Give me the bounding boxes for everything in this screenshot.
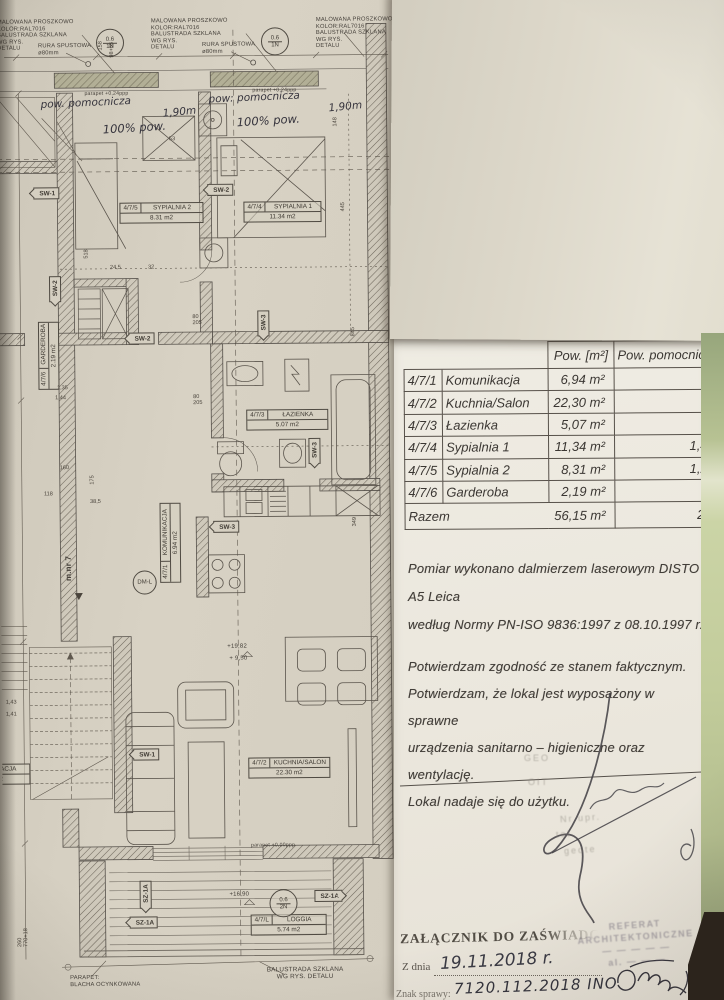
dim-text: 260 770+18 (17, 928, 29, 947)
section-marker: SW-3 (308, 438, 320, 464)
case-number-label: Znak sprawy: (396, 989, 451, 1000)
dim-text: 518 (83, 249, 89, 258)
blank-top-sheet (390, 0, 724, 341)
room-area: 22.30 m2 (249, 768, 329, 778)
room-id: 4/7/3 (247, 410, 268, 419)
room-label-sypialnia-1: 4/7/4SYPIALNIA 1 11.34 m2 (243, 201, 321, 223)
dim-text: 148 (332, 117, 338, 126)
dim-text: 118 (44, 491, 53, 497)
dim-text: 98+65 (109, 42, 115, 58)
table-cell-id: 4/7/1 (404, 370, 442, 393)
room-area: 11.34 m2 (244, 212, 320, 222)
dim-text: 24,5 (110, 265, 121, 271)
dim-text: 80 205 (193, 394, 202, 406)
table-cell-name: Łazienka (442, 414, 548, 437)
table-total-aux: 2, (614, 502, 708, 529)
room-id: 4/7/5 (120, 204, 141, 213)
room-name: SYPIALNIA 2 (142, 203, 203, 213)
section-marker: SZ-1A (140, 880, 152, 909)
table-cell-aux (614, 390, 708, 413)
room-area: 5.07 m2 (247, 420, 327, 430)
table-cell-name: Sypialnia 2 (442, 459, 548, 482)
photo-of-document: MALOWANA PROSZKOWO KOLOR:RAL7016 BALUSTR… (0, 0, 724, 1000)
dm-l-marker: DM-L (133, 570, 157, 594)
table-cell-id: 4/7/5 (404, 459, 442, 482)
parapet-level-note: parapet +0,00ppp (251, 842, 295, 849)
table-total-label: Razem (404, 503, 548, 530)
room-id: 4/7/6 (39, 368, 48, 389)
room-label-loggia: 4/7/LLOGGIA 5.74 m2 (251, 914, 327, 936)
room-id: 4/7/4 (244, 202, 265, 211)
table-cell-id: 4/7/3 (404, 415, 442, 438)
room-label-lazienka: 4/7/3ŁAZIENKA 5.07 m2 (246, 409, 328, 431)
room-area: 6.94 m2 (171, 504, 181, 582)
room-name: KOMUNIKACJA (161, 504, 170, 561)
room-label-komunikacja: 4/7/1KOMUNIKACJA 6.94 m2 (160, 503, 182, 583)
faint-stamp-fragment: OIT (528, 777, 549, 787)
marker-label: DM-L (137, 579, 152, 585)
table-header-area: Pow. [m²] (547, 341, 613, 369)
handwritten-case-number: 7120.112.2018 INO (454, 974, 618, 998)
faint-stamp-fragment: Nr upr. (560, 812, 602, 825)
table-cell-name: Kuchnia/Salon (442, 391, 548, 414)
dim-text: 1,43 (6, 700, 17, 706)
floor-plan-drawing: MALOWANA PROSZKOWO KOLOR:RAL7016 BALUSTR… (0, 0, 404, 1000)
table-cell-id: 4/7/4 (404, 437, 442, 460)
confirmation-text: Potwierdzam zgodność ze stanem faktyczny… (408, 653, 708, 815)
dim-text: 53 (169, 136, 175, 142)
dim-text: 175 (89, 475, 95, 484)
room-name: SYPIALNIA 1 (266, 202, 321, 211)
dim-text: 1,44 (55, 395, 66, 401)
apartment-number-label: m.nr 7 (66, 556, 73, 581)
table-cell-area: 8,31 m² (548, 458, 614, 481)
dim-text: 1,35 (57, 385, 68, 391)
downpipe-note: RURA SPUSTOWA ø80mm (202, 42, 255, 56)
section-marker: SW-1 (133, 748, 159, 760)
section-marker: SW-2 (207, 184, 233, 196)
background-strip (701, 333, 724, 923)
room-name: KUCHNIA/SALON (270, 758, 329, 768)
dim-text: 158 (98, 41, 104, 50)
level-mark: + 9,50 (229, 656, 247, 663)
faint-stamp-fragment: tel. (556, 828, 577, 839)
section-marker: SW-3 (213, 521, 239, 533)
section-marker: SZ-1A (130, 916, 159, 928)
room-label-neighbor-cut: KOMUNIKACJA ,14 m2 (0, 764, 30, 786)
table-cell-name: Komunikacja (442, 369, 548, 392)
dim-text: 1,41 (6, 712, 17, 718)
table-header-empty (403, 341, 547, 370)
parapet-bottom-note: PARAPET: BLACHA OCYNKOWANA (70, 974, 160, 988)
table-cell-name: Garderoba (442, 481, 548, 504)
room-name: KOMUNIKACJA (0, 765, 29, 775)
room-label-kuchnia-salon: 4/7/2KUCHNIA/SALON 22.30 m2 (248, 757, 330, 779)
table-cell-area: 5,07 m² (548, 413, 614, 436)
section-marker: SW-2 (49, 276, 61, 302)
balustrade-spec-note: MALOWANA PROSZKOWO KOLOR:RAL7016 BALUSTR… (316, 16, 400, 50)
dim-text: 845 (350, 327, 356, 336)
table-cell-aux (614, 480, 708, 503)
dim-text: 80 205 (192, 314, 201, 326)
section-marker: SW-2 (129, 332, 155, 344)
room-area: ,14 m2 (0, 775, 29, 785)
dim-text: 160 (60, 465, 69, 471)
window-type-marker: 0.62N (269, 889, 297, 917)
table-cell-aux: 1,2 (614, 457, 708, 480)
table-header-aux: Pow. pomocnic (613, 340, 708, 369)
level-mark: +16,90 (229, 892, 249, 899)
floor-plan-linework (0, 0, 404, 1000)
attachment-stamp-date-label: Z dnia (402, 961, 430, 973)
room-area: 5.74 m2 (252, 925, 326, 935)
section-marker: SW-3 (257, 310, 269, 336)
dim-text: 445 (340, 202, 346, 211)
table-cell-aux (614, 368, 708, 391)
room-id: 4/7/2 (249, 758, 270, 767)
marker-bottom: 1N (268, 42, 282, 48)
table-cell-area: 22,30 m² (548, 391, 614, 414)
table-cell-name: Sypialnia 1 (442, 436, 548, 459)
measurement-note: Pomiar wykonano dalmierzem laserowym DIS… (408, 555, 708, 639)
room-name: GARDEROBA (39, 321, 48, 368)
room-label-garderoba: 4/7/6GARDEROBA 2.19 m2 (38, 322, 60, 390)
dim-text: 38,5 (90, 499, 101, 505)
office-stamp: REFERAT ARCHITEKTONICZNE — — — — — al. —… (568, 914, 703, 971)
faint-stamp-fragment: geote (564, 844, 597, 856)
table-cell-aux: 1,4 (614, 435, 708, 458)
table-cell-area: 6,94 m² (548, 369, 614, 392)
table-total-area: 56,15 m² (548, 503, 614, 529)
level-mark: +19,82 (227, 644, 247, 651)
balustrade-bottom-note: BALUSTRADA SZKLANA WG RYS. DETALU (260, 967, 350, 981)
window-type-marker: 0.61N (261, 27, 289, 55)
marker-bottom: 2N (277, 904, 291, 910)
table-cell-area: 11,34 m² (548, 436, 614, 459)
table-cell-aux (614, 413, 708, 436)
room-id: 4/7/L (252, 915, 273, 924)
faint-stamp-fragment: GEO (524, 753, 550, 763)
table-cell-id: 4/7/2 (404, 392, 442, 415)
floor-plan-sheet: MALOWANA PROSZKOWO KOLOR:RAL7016 BALUSTR… (0, 0, 418, 1000)
table-cell-id: 4/7/6 (404, 482, 442, 505)
area-table: Pow. [m²] Pow. pomocnic 4/7/1 Komunikacj… (403, 340, 704, 530)
dim-text: 349 (352, 517, 358, 526)
certificate-sheet: Pow. [m²] Pow. pomocnic 4/7/1 Komunikacj… (394, 331, 708, 1000)
dim-text: 32 (148, 264, 154, 270)
room-name: ŁAZIENKA (268, 410, 327, 420)
table-cell-area: 2,19 m² (548, 481, 614, 504)
room-area: 2.19 m2 (49, 323, 59, 389)
section-marker: SZ-1A (314, 890, 343, 902)
room-label-sypialnia-2: 4/7/5SYPIALNIA 2 8.31 m2 (119, 202, 203, 224)
room-area: 8.31 m2 (120, 213, 202, 223)
downpipe-note: RURA SPUSTOWA ø80mm (38, 43, 91, 57)
section-marker: SW-1 (33, 187, 59, 199)
room-id: 4/7/1 (161, 561, 170, 582)
